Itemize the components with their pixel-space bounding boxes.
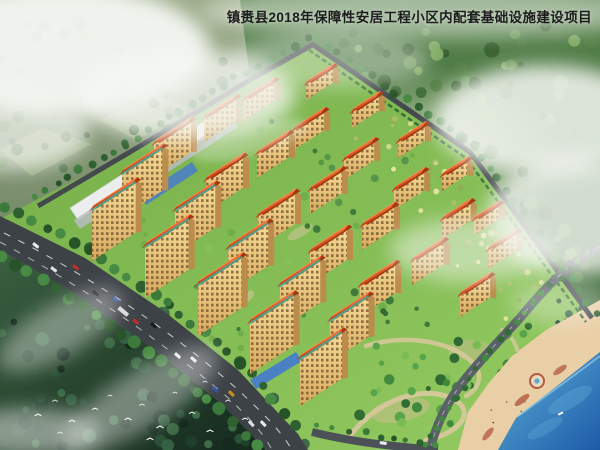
project-title: 镇赉县2018年保障性安居工程小区内配套基础设施建设项目 [227,6,592,26]
cloud [230,32,430,88]
rendering-image: 镇赉县2018年保障性安居工程小区内配套基础设施建设项目 [0,0,600,450]
scene-svg [0,0,600,450]
platform-pool [534,378,539,383]
cloud [390,218,550,282]
